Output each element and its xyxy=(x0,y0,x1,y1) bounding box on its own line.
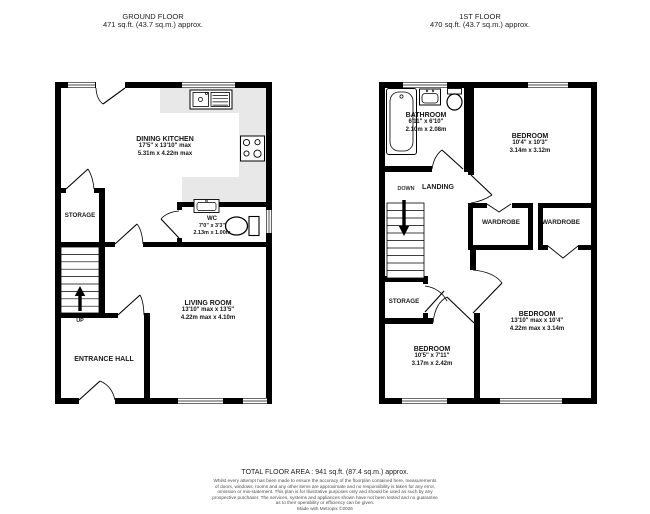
disclaimer-line: Whilst every attempt has been made to en… xyxy=(212,478,438,484)
label-wardrobe-1: WARDROBE xyxy=(482,219,520,226)
label-storage-ground: STORAGE xyxy=(65,212,95,219)
label-up: UP xyxy=(76,318,84,324)
label-wc: WC 7'0" x 3'3" 2.13m x 1.00m xyxy=(193,216,230,236)
label-bedroom-3: BEDROOM 13'10" max x 10'4" 4.22m max x 3… xyxy=(510,311,564,333)
label-entrance-hall: ENTRANCE HALL xyxy=(74,356,134,363)
label-dining-kitchen: DINING KITCHEN 17'5" x 13'10" max 5.31m … xyxy=(136,136,194,158)
label-bedroom-1: BEDROOM 10'4" x 10'3" 3.14m x 3.12m xyxy=(510,133,551,155)
label-bedroom-2: BEDROOM 10'5" x 7'11" 3.17m x 2.42m xyxy=(412,346,453,368)
first-doors xyxy=(425,150,502,323)
label-storage-first: STORAGE xyxy=(389,298,419,305)
made-with-credit: Made with Metropix ©2026 xyxy=(212,506,438,512)
ground-floor-area-text: 471 sq.ft. (43.7 sq.m.) approx. xyxy=(103,21,203,29)
staircase-ground xyxy=(61,247,99,313)
disclaimer-line: omission or mis-statement. This plan is … xyxy=(212,489,438,495)
hob-icon xyxy=(241,136,265,161)
first-floor-title: 1ST FLOOR 470 sq.ft. (43.7 sq.m.) approx… xyxy=(430,13,530,29)
wc-basin-icon xyxy=(194,200,219,213)
staircase-first xyxy=(387,200,424,278)
floorplan-drawing xyxy=(0,0,650,514)
label-bathroom: BATHROOM 6'11" x 6'10" 2.10m x 2.08m xyxy=(406,112,447,134)
label-down: DOWN xyxy=(397,186,414,192)
ground-floor-title: GROUND FLOOR 471 sq.ft. (43.7 sq.m.) app… xyxy=(103,13,203,29)
disclaimer: Whilst every attempt has been made to en… xyxy=(212,478,438,511)
bathroom-toilet-icon xyxy=(447,89,462,111)
kitchen-sink-icon xyxy=(190,90,232,109)
label-wardrobe-2: WARDROBE xyxy=(542,219,580,226)
floorplan-page: GROUND FLOOR 471 sq.ft. (43.7 sq.m.) app… xyxy=(0,0,650,514)
first-floor-area-text: 470 sq.ft. (43.7 sq.m.) approx. xyxy=(430,21,530,29)
total-floor-area: TOTAL FLOOR AREA : 941 sq.ft. (87.4 sq.m… xyxy=(241,469,408,476)
label-landing: LANDING xyxy=(422,184,454,191)
label-living-room: LIVING ROOM 13'10" max x 13'5" 4.22m max… xyxy=(181,300,235,322)
bathroom-basin-icon xyxy=(420,89,441,105)
